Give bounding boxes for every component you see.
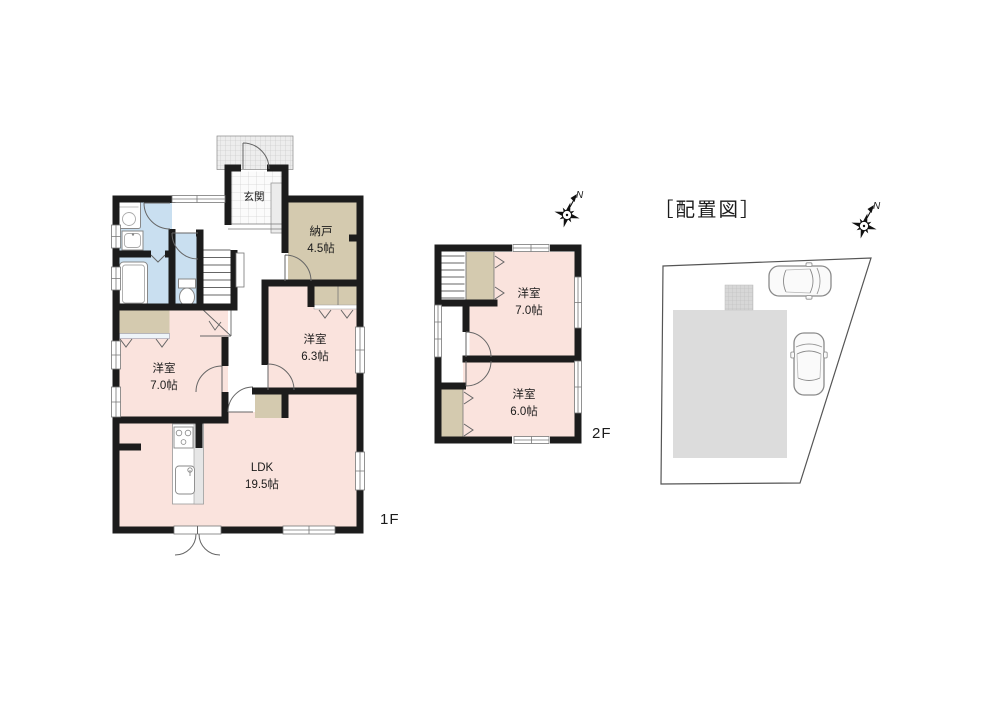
room-label-bedroom7-2f: 洋室 [518,286,541,300]
window [356,327,365,373]
floor-label-2f: 2F [592,425,612,442]
floor-plan-2f: 洋室 7.0帖 洋室 6.0帖 2F [435,245,612,444]
window [514,437,549,444]
storage-room-floor [288,202,357,280]
window [575,277,582,328]
window [513,245,549,252]
floor-plan-page: 玄関 納戸 4.5帖 洋室 7.0帖 洋室 6.3帖 LDK 19.5帖 1F [0,0,1000,706]
door-swing [228,387,253,412]
room-size-bedroom7-1f: 7.0帖 [150,378,178,392]
toilet-icon [179,279,196,306]
room-label-bedroom7-1f: 洋室 [153,361,176,375]
room-size-bedroom7-2f: 7.0帖 [515,303,543,317]
room-label-ldk: LDK [251,462,274,474]
stairs-icon [442,252,467,302]
sink-icon [122,231,143,250]
ldk-storage-nook [255,395,282,419]
room-size-ldk: 19.5帖 [245,477,279,491]
window [112,341,121,369]
site-plan-title: ［配置図］ [654,199,762,221]
bedroom-7-2f-floor [494,252,575,356]
north-label: N [873,201,881,212]
bathtub-icon [120,262,148,306]
stove-icon [174,427,193,448]
window [435,305,442,357]
parked-car [791,333,827,395]
window [112,267,121,290]
building-footprint [673,310,787,458]
double-door-swing [174,526,221,555]
compass-siteplan: N [848,201,881,242]
window [356,452,365,490]
room-size-nando: 4.5帖 [307,241,335,255]
room-label-nando: 納戸 [310,225,333,238]
window [112,387,121,417]
window [575,361,582,413]
floor-plan-1f: 玄関 納戸 4.5帖 洋室 7.0帖 洋室 6.3帖 LDK 19.5帖 1F [112,136,400,555]
ldk-floor [116,423,357,527]
room-label-genkan: 玄関 [244,190,265,203]
room-label-bedroom63: 洋室 [304,332,327,346]
compass-floorplan: N [551,190,584,231]
window [283,526,335,534]
window [172,196,225,203]
north-label: N [576,190,584,201]
floor-plan-drawing: 玄関 納戸 4.5帖 洋室 7.0帖 洋室 6.3帖 LDK 19.5帖 1F [0,0,1000,706]
porch [217,136,293,170]
room-size-bedroom6-2f: 6.0帖 [510,404,538,418]
building-entrance-footprint [725,285,753,310]
window [112,225,121,248]
kitchen-sink-icon [176,466,195,494]
room-size-bedroom63: 6.3帖 [301,349,329,363]
room-label-bedroom6-2f: 洋室 [513,387,536,401]
site-plan: ［配置図］ [654,199,871,484]
stair-railing [236,253,244,287]
parked-car [769,263,831,299]
floor-label-1f: 1F [380,511,400,528]
washing-machine-icon [118,202,141,229]
